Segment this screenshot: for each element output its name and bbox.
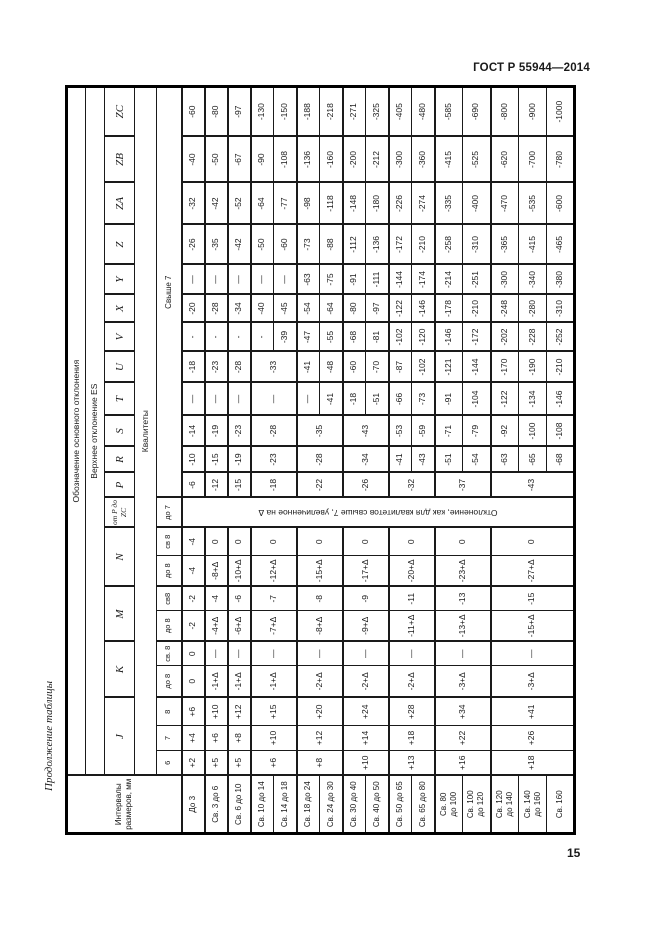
data-cell: -53	[389, 416, 412, 447]
data-cell: -172	[463, 323, 491, 352]
data-cell: -87	[389, 352, 412, 383]
data-cell: -97	[228, 86, 251, 136]
data-cell: -535	[519, 183, 547, 225]
data-cell: -13+Δ	[435, 611, 491, 642]
data-cell: +5	[228, 751, 251, 776]
data-cell: -4	[205, 587, 228, 611]
data-cell: -2	[182, 611, 205, 642]
letter-cell: X	[105, 295, 135, 323]
data-cell: -6	[182, 473, 205, 498]
data-cell: -28	[297, 447, 343, 473]
data-cell: -34	[228, 295, 251, 323]
data-cell: -310	[463, 225, 491, 265]
table-continuation-label: Продолжение таблицы	[43, 681, 55, 791]
interval-cell: Св. 100до 120	[463, 776, 491, 834]
interval-label-line: Св. 80	[439, 777, 449, 833]
data-cell: -210	[547, 352, 575, 383]
interval-label-line: Св. 3 до 6	[211, 777, 221, 833]
data-cell: -400	[463, 183, 491, 225]
interval-cell: Св. 3 до 6	[205, 776, 228, 834]
data-cell: -60	[343, 352, 366, 383]
table-row: Св. 6 до 10+5+8+12-1+Δ—-6+Δ-6-10+Δ0-15-1…	[228, 86, 251, 833]
interval-label-line: до 120	[476, 777, 486, 833]
data-cell: -88	[320, 225, 343, 265]
grade-cell: св8	[157, 587, 182, 611]
interval-label-line: Св. 100	[466, 777, 476, 833]
data-cell: -11	[389, 587, 435, 611]
data-cell: -9+Δ	[343, 611, 389, 642]
data-cell: -73	[297, 225, 320, 265]
data-cell: -6	[228, 587, 251, 611]
data-cell: -28	[251, 416, 297, 447]
data-cell: -50	[205, 137, 228, 183]
data-cell: +4	[182, 726, 205, 751]
data-cell: -15	[491, 587, 575, 611]
grade-cell: до 7	[157, 498, 182, 528]
data-cell: -51	[435, 447, 463, 473]
data-cell: -470	[491, 183, 519, 225]
data-cell: -23	[205, 352, 228, 383]
data-cell: -	[182, 323, 205, 352]
letter-cell: K	[105, 642, 135, 698]
data-cell: +22	[435, 726, 491, 751]
data-cell: -32	[389, 473, 435, 498]
letter-cell: N	[105, 528, 135, 587]
interval-label-line: Св. 6 до 10	[234, 777, 244, 833]
data-cell: -585	[435, 86, 463, 136]
data-cell: -71	[435, 416, 463, 447]
interval-label-line: до 100	[449, 777, 459, 833]
data-cell: -600	[547, 183, 575, 225]
interval-cell: Св. 160	[547, 776, 575, 834]
data-cell: +41	[491, 698, 575, 726]
data-cell: -170	[491, 352, 519, 383]
table-row: Св. 10 до 14+6+10+15-1+Δ—-7+Δ-7-12+Δ0-18…	[251, 86, 274, 833]
data-cell: -900	[519, 86, 547, 136]
data-cell: -63	[297, 265, 320, 295]
data-cell: -2	[182, 587, 205, 611]
data-cell: -214	[435, 265, 463, 295]
data-cell: -	[228, 323, 251, 352]
data-cell: -1000	[547, 86, 575, 136]
data-cell: -148	[343, 183, 366, 225]
table-row: Св. 18 до 24+8+12+20-2+Δ—-8+Δ-8-15+Δ0-22…	[297, 86, 320, 833]
interval-label-line: Св. 65 до 80	[418, 777, 428, 833]
data-cell: -15	[205, 447, 228, 473]
data-cell: 0	[389, 528, 435, 556]
data-cell: -4+Δ	[205, 611, 228, 642]
data-cell: -20	[182, 295, 205, 323]
data-cell: -40	[182, 137, 205, 183]
data-cell: -146	[547, 383, 575, 416]
data-cell: -122	[389, 295, 412, 323]
interval-label-line: Св. 140	[523, 777, 533, 833]
data-cell: +18	[389, 726, 435, 751]
data-cell: -280	[519, 295, 547, 323]
interval-label-line: Св. 10 до 14	[257, 777, 267, 833]
data-cell: 0	[228, 528, 251, 556]
data-cell: 0	[182, 642, 205, 666]
data-cell: +16	[435, 751, 491, 776]
table-row: Св. 3 до 6+5+6+10-1+Δ—-4+Δ-4-8+Δ0-12-15-…	[205, 86, 228, 833]
data-cell: -178	[435, 295, 463, 323]
data-cell: 0	[182, 666, 205, 698]
data-cell: -620	[491, 137, 519, 183]
data-cell: -67	[228, 137, 251, 183]
data-cell: -81	[366, 323, 389, 352]
data-cell: -365	[491, 225, 519, 265]
letter-cell: T	[105, 383, 135, 416]
data-cell: —	[182, 383, 205, 416]
letter-cell: S	[105, 416, 135, 447]
data-cell: -41	[320, 383, 343, 416]
data-cell: -10+Δ	[228, 556, 251, 587]
data-cell: -780	[547, 137, 575, 183]
data-cell: —	[228, 383, 251, 416]
interval-cell: Св. 10 до 14	[251, 776, 274, 834]
data-cell: -80	[343, 295, 366, 323]
data-cell: 0	[343, 528, 389, 556]
data-cell: -73	[412, 383, 435, 416]
data-cell: -465	[547, 225, 575, 265]
data-cell: -146	[435, 323, 463, 352]
data-cell: +26	[491, 726, 575, 751]
data-cell: -102	[412, 352, 435, 383]
data-cell: +14	[343, 726, 389, 751]
data-cell: -102	[389, 323, 412, 352]
data-cell: -690	[463, 86, 491, 136]
corner-cell-intervals: Интервалы размеров, мм	[67, 776, 182, 834]
interval-label-line: Св. 30 до 40	[349, 777, 359, 833]
letter-cell: от P до ZC	[105, 498, 135, 528]
data-cell: -136	[366, 225, 389, 265]
data-cell: -33	[251, 352, 297, 383]
data-cell: -144	[463, 352, 491, 383]
data-cell: -480	[412, 86, 435, 136]
letter-cell: M	[105, 587, 135, 642]
data-cell: -68	[343, 323, 366, 352]
data-cell: —	[297, 642, 343, 666]
data-cell: -47	[297, 323, 320, 352]
data-cell: -415	[519, 225, 547, 265]
grade-cell: 7	[157, 726, 182, 751]
data-cell: -32	[182, 183, 205, 225]
data-cell: -68	[547, 447, 575, 473]
data-cell: -60	[182, 86, 205, 136]
data-cell: -28	[205, 295, 228, 323]
data-cell: -34	[343, 447, 389, 473]
data-cell: -91	[343, 265, 366, 295]
data-cell: —	[228, 265, 251, 295]
data-cell: -80	[205, 86, 228, 136]
document-page: ГОСТ Р 55944—2014 Продолжение таблицы Ин…	[0, 0, 661, 935]
data-cell: -52	[228, 183, 251, 225]
interval-label-line: Св. 120	[495, 777, 505, 833]
interval-label-line: Св. 14 до 18	[280, 777, 290, 833]
data-cell: -11+Δ	[389, 611, 435, 642]
data-cell: -35	[297, 416, 343, 447]
data-cell: -172	[389, 225, 412, 265]
data-cell: -104	[463, 383, 491, 416]
data-cell: -251	[463, 265, 491, 295]
data-cell: -9	[343, 587, 389, 611]
data-cell: -7+Δ	[251, 611, 297, 642]
data-cell: -415	[435, 137, 463, 183]
data-cell: -23+Δ	[435, 556, 491, 587]
letter-cell: V	[105, 323, 135, 352]
data-cell: -160	[320, 137, 343, 183]
data-cell: +20	[297, 698, 343, 726]
letter-cell: ZC	[105, 86, 135, 136]
data-cell: -79	[463, 416, 491, 447]
data-cell: -212	[366, 137, 389, 183]
data-cell: -118	[320, 183, 343, 225]
interval-label-line: до 140	[505, 777, 515, 833]
data-cell: -300	[389, 137, 412, 183]
interval-cell: Св. 40 до 50	[366, 776, 389, 834]
data-cell: —	[389, 642, 435, 666]
data-cell: -13	[435, 587, 491, 611]
interval-label-line: Св. 160	[555, 777, 565, 833]
data-cell: -8	[297, 587, 343, 611]
data-cell: -12+Δ	[251, 556, 297, 587]
data-cell: -144	[389, 265, 412, 295]
data-cell: —	[251, 383, 297, 416]
data-cell: +28	[389, 698, 435, 726]
data-cell: —	[205, 383, 228, 416]
data-cell: -35	[205, 225, 228, 265]
data-cell: -39	[274, 323, 297, 352]
data-cell: -54	[297, 295, 320, 323]
data-cell: —	[182, 265, 205, 295]
data-cell: -325	[366, 86, 389, 136]
interval-cell: Св. 18 до 24	[297, 776, 320, 834]
data-cell: -1+Δ	[205, 666, 228, 698]
data-cell: -6+Δ	[228, 611, 251, 642]
data-cell: -37	[435, 473, 491, 498]
data-cell: -15+Δ	[491, 611, 575, 642]
data-cell: +8	[228, 726, 251, 751]
data-cell: -54	[463, 447, 491, 473]
data-cell: -2+Δ	[389, 666, 435, 698]
data-cell: +6	[251, 751, 297, 776]
interval-label-line: Св. 50 до 65	[395, 777, 405, 833]
data-cell: -202	[491, 323, 519, 352]
data-cell: -8+Δ	[205, 556, 228, 587]
data-cell: +24	[343, 698, 389, 726]
interval-cell: Св. 120до 140	[491, 776, 519, 834]
data-cell: -97	[366, 295, 389, 323]
data-cell: -188	[297, 86, 320, 136]
data-cell: -8+Δ	[297, 611, 343, 642]
data-cell: —	[205, 265, 228, 295]
grade-cell: св 8	[157, 528, 182, 556]
data-cell: -228	[519, 323, 547, 352]
standard-designation: ГОСТ Р 55944—2014	[473, 62, 590, 74]
data-cell: —	[297, 383, 320, 416]
data-cell: -218	[320, 86, 343, 136]
data-cell: -59	[412, 416, 435, 447]
data-cell: -42	[205, 183, 228, 225]
data-cell: -210	[463, 295, 491, 323]
data-cell: -190	[519, 352, 547, 383]
data-cell: -98	[297, 183, 320, 225]
data-cell: -271	[343, 86, 366, 136]
data-cell: -27+Δ	[491, 556, 575, 587]
data-cell: —	[274, 265, 297, 295]
data-cell: -800	[491, 86, 519, 136]
data-cell: +8	[297, 751, 343, 776]
data-cell: +10	[343, 751, 389, 776]
interval-cell: Св. 24 до 30	[320, 776, 343, 834]
data-cell: -525	[463, 137, 491, 183]
data-cell: +10	[205, 698, 228, 726]
data-cell: -111	[366, 265, 389, 295]
data-cell: +6	[182, 698, 205, 726]
data-cell: -252	[547, 323, 575, 352]
data-cell: -121	[435, 352, 463, 383]
data-cell: +12	[297, 726, 343, 751]
data-cell: -310	[547, 295, 575, 323]
grade-cell: св. 8	[157, 642, 182, 666]
data-cell: -180	[366, 183, 389, 225]
data-cell: -360	[412, 137, 435, 183]
data-cell: 0	[435, 528, 491, 556]
grade-cell: 6	[157, 751, 182, 776]
data-cell: 0	[205, 528, 228, 556]
data-cell: -60	[274, 225, 297, 265]
data-cell: -4	[182, 556, 205, 587]
data-cell: -122	[491, 383, 519, 416]
data-cell: -380	[547, 265, 575, 295]
letter-cell: U	[105, 352, 135, 383]
data-cell: -258	[435, 225, 463, 265]
data-cell: -100	[519, 416, 547, 447]
data-cell: -	[251, 323, 274, 352]
note-text: Отклонение, как для квалитетов свыше 7, …	[258, 508, 497, 518]
data-cell: -174	[412, 265, 435, 295]
table-row: Св. 120до 140+18+26+41-3+Δ—-15+Δ-15-27+Δ…	[491, 86, 519, 833]
data-cell: -3+Δ	[491, 666, 575, 698]
table-row: До 3+2+4+600-2-2-4-4Отклонение, как для …	[182, 86, 205, 833]
interval-cell: Св. 50 до 65	[389, 776, 412, 834]
data-cell: -7	[251, 587, 297, 611]
data-cell: +6	[205, 726, 228, 751]
data-cell: -23	[251, 447, 297, 473]
interval-cell: Св. 140до 160	[519, 776, 547, 834]
data-cell: -26	[343, 473, 389, 498]
grade-cell: до 8	[157, 556, 182, 587]
data-cell: +5	[205, 751, 228, 776]
data-cell: 0	[491, 528, 575, 556]
data-cell: -63	[491, 447, 519, 473]
data-cell: -51	[366, 383, 389, 416]
grade-cell: до 8	[157, 666, 182, 698]
data-cell: -134	[519, 383, 547, 416]
data-cell: -2+Δ	[297, 666, 343, 698]
grade-cell: Свыше 7	[157, 86, 182, 497]
data-cell: -40	[251, 295, 274, 323]
interval-cell: Св. 6 до 10	[228, 776, 251, 834]
interval-cell: Св. 65 до 80	[412, 776, 435, 834]
data-cell: +18	[491, 751, 575, 776]
data-cell: -75	[320, 265, 343, 295]
data-cell: -70	[366, 352, 389, 383]
header-designation: Обозначение основного отклонения	[67, 86, 86, 775]
data-cell: -43	[491, 473, 575, 498]
data-cell: -405	[389, 86, 412, 136]
interval-cell: Св. 14 до 18	[274, 776, 297, 834]
data-cell: -146	[412, 295, 435, 323]
data-cell: -108	[274, 137, 297, 183]
data-cell: -90	[251, 137, 274, 183]
data-cell: -108	[547, 416, 575, 447]
data-cell: -64	[251, 183, 274, 225]
data-cell: -23	[228, 416, 251, 447]
interval-cell: Св. 30 до 40	[343, 776, 366, 834]
interval-label-line: До 3	[188, 777, 198, 833]
data-cell: +34	[435, 698, 491, 726]
data-cell: -12	[205, 473, 228, 498]
data-cell: -136	[297, 137, 320, 183]
data-cell: -26	[182, 225, 205, 265]
letter-cell: ZB	[105, 137, 135, 183]
data-cell: -274	[412, 183, 435, 225]
data-cell: -1+Δ	[228, 666, 251, 698]
data-cell: -150	[274, 86, 297, 136]
header-kvalitety: Квалитеты	[135, 86, 157, 775]
data-cell: -112	[343, 225, 366, 265]
data-cell: -22	[297, 473, 343, 498]
data-cell: -91	[435, 383, 463, 416]
grade-cell: до 8	[157, 611, 182, 642]
data-cell: -41	[389, 447, 412, 473]
data-cell: -340	[519, 265, 547, 295]
data-cell: -66	[389, 383, 412, 416]
data-cell: -65	[519, 447, 547, 473]
interval-label-line: Св. 24 до 30	[326, 777, 336, 833]
data-cell: -3+Δ	[435, 666, 491, 698]
data-cell: +15	[251, 698, 297, 726]
data-cell: —	[251, 642, 297, 666]
data-cell: -210	[412, 225, 435, 265]
interval-label-line: Св. 18 до 24	[303, 777, 313, 833]
data-cell: -19	[205, 416, 228, 447]
table-row: Св. 30 до 40+10+14+24-2+Δ—-9+Δ-9-17+Δ0-2…	[343, 86, 366, 833]
data-cell: -45	[274, 295, 297, 323]
interval-label-line: Св. 40 до 50	[372, 777, 382, 833]
header-upper-deviation-es: Верхнее отклонение ES	[86, 86, 105, 775]
data-cell: -300	[491, 265, 519, 295]
data-cell: -92	[491, 416, 519, 447]
data-cell: -200	[343, 137, 366, 183]
data-cell: -4	[182, 528, 205, 556]
data-cell: -50	[251, 225, 274, 265]
interval-cell: Св. 80до 100	[435, 776, 463, 834]
data-cell: —	[491, 642, 575, 666]
data-cell: +2	[182, 751, 205, 776]
letter-cell: Y	[105, 265, 135, 295]
data-cell: -18	[251, 473, 297, 498]
data-cell: —	[205, 642, 228, 666]
data-cell: -18	[182, 352, 205, 383]
data-cell: -15	[228, 473, 251, 498]
table-row: Св. 80до 100+16+22+34-3+Δ—-13+Δ-13-23+Δ0…	[435, 86, 463, 833]
letter-cell: P	[105, 473, 135, 498]
letter-cell: J	[105, 698, 135, 776]
data-cell: -20+Δ	[389, 556, 435, 587]
data-cell: —	[228, 642, 251, 666]
